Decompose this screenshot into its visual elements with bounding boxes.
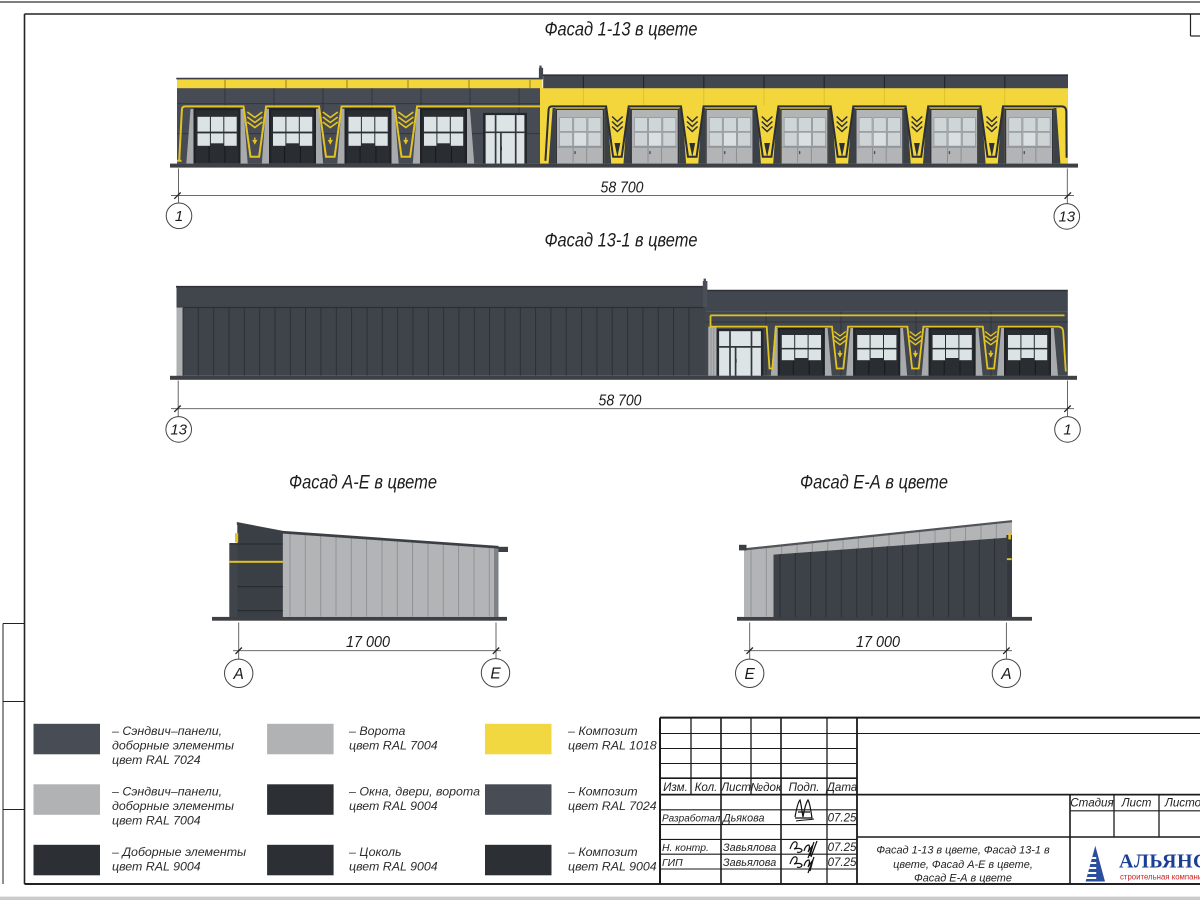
svg-text:цвет RAL 9004: цвет RAL 9004 bbox=[349, 799, 438, 813]
svg-text:1: 1 bbox=[1063, 422, 1071, 439]
svg-text:Фасад Е-А в цвете: Фасад Е-А в цвете bbox=[914, 873, 1012, 885]
svg-text:Листов: Листов bbox=[1164, 797, 1200, 810]
svg-text:Подп.: Подп. bbox=[789, 781, 820, 794]
svg-text:– Композит: – Композит bbox=[567, 845, 638, 859]
svg-text:13: 13 bbox=[170, 422, 187, 439]
svg-text:Лист: Лист bbox=[720, 781, 751, 794]
svg-text:цвет RAL 7004: цвет RAL 7004 bbox=[112, 814, 201, 828]
svg-text:А: А bbox=[233, 666, 244, 683]
svg-text:Фасад Е-А в цвете: Фасад Е-А в цвете bbox=[800, 472, 948, 494]
svg-text:– Сэндвич–панели,: – Сэндвич–панели, bbox=[111, 785, 222, 799]
svg-text:цвет RAL 7024: цвет RAL 7024 bbox=[568, 799, 657, 813]
svg-text:Завьялова: Завьялова bbox=[723, 842, 776, 854]
svg-text:№док: №док bbox=[751, 781, 782, 794]
svg-text:Дата: Дата bbox=[825, 781, 858, 794]
svg-text:– Ворота: – Ворота bbox=[348, 724, 405, 738]
svg-text:строительная компания: строительная компания bbox=[1120, 873, 1200, 882]
svg-text:АЛЬЯНС: АЛЬЯНС bbox=[1119, 851, 1200, 873]
svg-text:цвете, Фасад А-Е в цвете,: цвете, Фасад А-Е в цвете, bbox=[893, 859, 1033, 871]
svg-text:цвет RAL 7004: цвет RAL 7004 bbox=[349, 739, 438, 753]
svg-text:Н. контр.: Н. контр. bbox=[662, 843, 709, 854]
svg-text:– Доборные элементы: – Доборные элементы bbox=[111, 845, 246, 859]
svg-text:Дьякова: Дьякова bbox=[722, 813, 765, 825]
svg-text:– Окна, двери, ворота: – Окна, двери, ворота bbox=[348, 785, 480, 799]
svg-text:17 000: 17 000 bbox=[856, 634, 900, 651]
svg-text:А: А bbox=[1000, 666, 1011, 683]
svg-text:– Композит: – Композит bbox=[567, 724, 638, 738]
svg-text:13: 13 bbox=[1058, 209, 1075, 226]
svg-text:07.25: 07.25 bbox=[828, 857, 857, 869]
svg-text:цвет RAL 1018: цвет RAL 1018 bbox=[568, 739, 657, 753]
svg-text:07.25: 07.25 bbox=[828, 813, 857, 825]
svg-text:Завьялова: Завьялова bbox=[723, 857, 776, 869]
svg-text:Изм.: Изм. bbox=[663, 781, 688, 794]
svg-text:доборные элементы: доборные элементы bbox=[112, 799, 234, 813]
svg-text:цвет RAL 9004: цвет RAL 9004 bbox=[568, 860, 657, 874]
svg-text:– Сэндвич–панели,: – Сэндвич–панели, bbox=[111, 724, 222, 738]
svg-text:58 700: 58 700 bbox=[599, 393, 642, 410]
svg-text:доборные элементы: доборные элементы bbox=[112, 739, 234, 753]
svg-text:Е: Е bbox=[490, 666, 501, 683]
svg-text:ГИП: ГИП bbox=[662, 858, 683, 869]
svg-text:Фасад 1-13 в цвете, Фасад 13-1: Фасад 1-13 в цвете, Фасад 13-1 в bbox=[876, 845, 1050, 857]
svg-text:Фасад 13-1 в цвете: Фасад 13-1 в цвете bbox=[545, 230, 698, 252]
svg-text:цвет RAL 7024: цвет RAL 7024 bbox=[112, 753, 201, 767]
svg-text:– Композит: – Композит bbox=[567, 785, 638, 799]
svg-text:– Цоколь: – Цоколь bbox=[348, 845, 401, 859]
svg-text:17 000: 17 000 bbox=[346, 634, 390, 651]
svg-text:цвет RAL 9004: цвет RAL 9004 bbox=[349, 860, 438, 874]
svg-text:Кол.: Кол. bbox=[695, 781, 718, 794]
svg-text:58 700: 58 700 bbox=[601, 180, 644, 197]
svg-text:Е: Е bbox=[745, 666, 756, 683]
svg-text:Фасад 1-13 в цвете: Фасад 1-13 в цвете bbox=[545, 19, 698, 41]
svg-text:Лист: Лист bbox=[1121, 797, 1152, 810]
svg-text:Фасад А-Е в цвете: Фасад А-Е в цвете bbox=[289, 472, 437, 494]
svg-text:Разработал: Разработал bbox=[662, 813, 721, 825]
svg-text:1: 1 bbox=[175, 208, 183, 225]
svg-text:07.25: 07.25 bbox=[828, 842, 857, 854]
svg-text:Стадия: Стадия bbox=[1070, 797, 1113, 810]
svg-text:цвет RAL 9004: цвет RAL 9004 bbox=[112, 860, 201, 874]
